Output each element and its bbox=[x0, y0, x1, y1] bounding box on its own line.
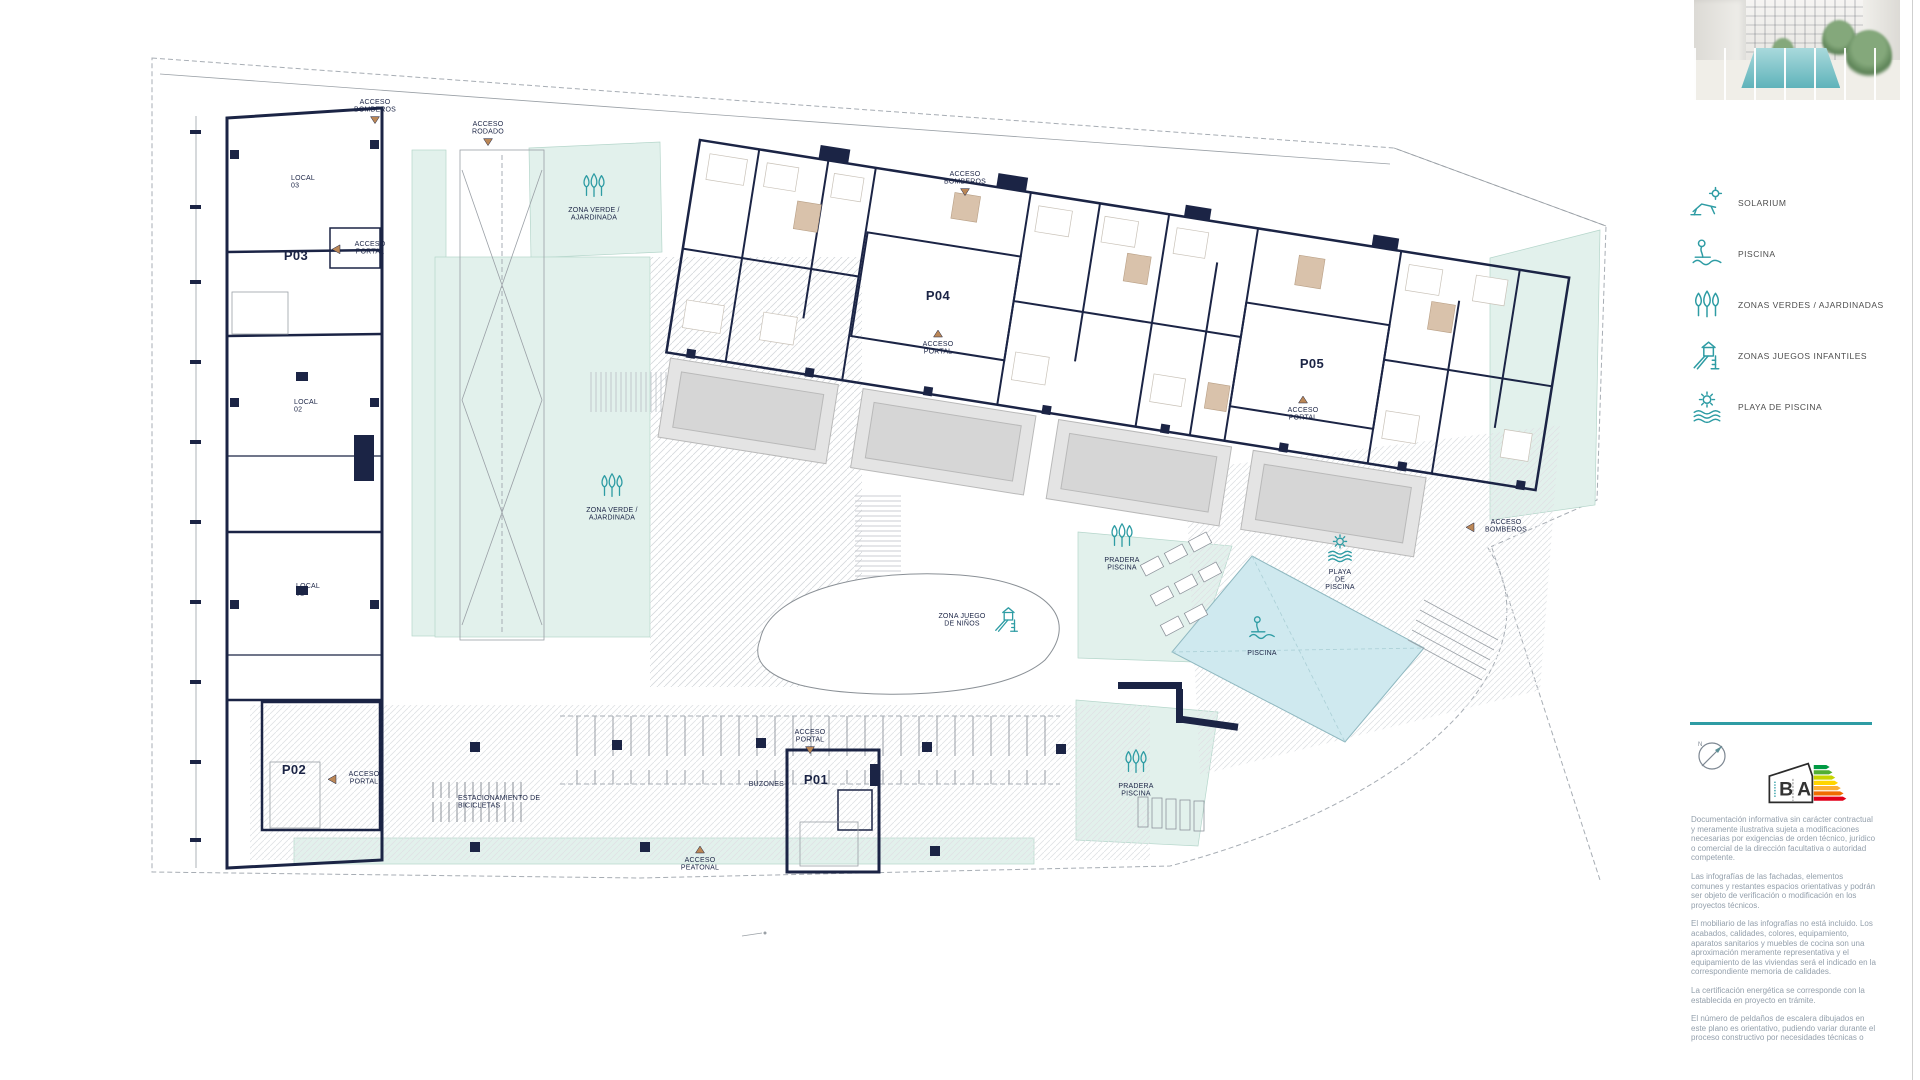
plan-label-p02: P02 bbox=[282, 762, 306, 777]
energy-certification-logo: B A bbox=[1768, 752, 1872, 814]
plan-label-acceso-bomberos-top-left: ACCESOBOMBEROS bbox=[354, 99, 396, 124]
svg-text:ZONA VERDE /AJARDINADA: ZONA VERDE /AJARDINADA bbox=[586, 507, 637, 522]
svg-text:ACCESOPEATONAL: ACCESOPEATONAL bbox=[681, 857, 719, 872]
swimmer-icon bbox=[1690, 237, 1724, 271]
slide-icon bbox=[1690, 339, 1724, 373]
disclaimer-paragraph: Documentación informativa sin carácter c… bbox=[1691, 815, 1877, 863]
legend-label: PISCINA bbox=[1738, 249, 1776, 259]
svg-text:P01: P01 bbox=[804, 772, 828, 787]
plan-label-acceso-bomberos-top-center: ACCESOBOMBEROS bbox=[944, 171, 986, 196]
svg-text:ACCESOPORTAL: ACCESOPORTAL bbox=[349, 771, 380, 786]
plan-label-acceso-portal-p04: ACCESOPORTAL bbox=[923, 330, 954, 356]
svg-text:N: N bbox=[1698, 742, 1702, 748]
legend-label: PLAYA DE PISCINA bbox=[1738, 402, 1822, 412]
energy-letter-a: A bbox=[1797, 778, 1811, 800]
legend-item-swimmer: PISCINA bbox=[1690, 237, 1905, 271]
plan-label-p03: P03 bbox=[284, 248, 308, 263]
svg-text:P03: P03 bbox=[284, 248, 308, 263]
plan-label-acceso-portal-p05: ACCESOPORTAL bbox=[1288, 396, 1319, 422]
legend-item-slide: ZONAS JUEGOS INFANTILES bbox=[1690, 339, 1905, 373]
boundary-ticks bbox=[190, 130, 201, 842]
svg-text:LOCAL03: LOCAL03 bbox=[291, 175, 315, 190]
svg-text:P05: P05 bbox=[1300, 356, 1324, 371]
svg-text:ZONA JUEGODE NIÑOS: ZONA JUEGODE NIÑOS bbox=[938, 613, 985, 628]
svg-text:PRADERAPISCINA: PRADERAPISCINA bbox=[1104, 557, 1139, 572]
legend-label: SOLARIUM bbox=[1738, 198, 1786, 208]
sheet-right-border bbox=[1912, 0, 1913, 1080]
disclaimer-paragraph: Las infografías de las fachadas, element… bbox=[1691, 872, 1877, 910]
plan-label-local-03: LOCAL03 bbox=[291, 175, 315, 190]
energy-letter-b: B bbox=[1779, 778, 1793, 800]
site-plan-drawing: ACCESOBOMBEROSACCESORODADOACCESOBOMBEROS… bbox=[0, 0, 1920, 1080]
panel-divider-line bbox=[1690, 722, 1872, 725]
svg-text:ACCESOBOMBEROS: ACCESOBOMBEROS bbox=[354, 99, 396, 114]
svg-text:P02: P02 bbox=[282, 762, 306, 777]
svg-text:ACCESOPORTAL: ACCESOPORTAL bbox=[355, 241, 386, 256]
disclaimer-text: Documentación informativa sin carácter c… bbox=[1691, 815, 1877, 1052]
compass-icon: N bbox=[1694, 738, 1730, 774]
svg-text:ACCESOBOMBEROS: ACCESOBOMBEROS bbox=[1485, 519, 1527, 534]
plan-label-p01: P01 bbox=[804, 772, 828, 787]
svg-text:PISCINA: PISCINA bbox=[1247, 650, 1277, 657]
legend-item-trees: ZONAS VERDES / AJARDINADAS bbox=[1690, 288, 1905, 322]
survey-mark bbox=[742, 932, 767, 937]
plan-label-buzones: BUZONES bbox=[749, 781, 784, 788]
plan-label-p05: P05 bbox=[1300, 356, 1324, 371]
trees-icon bbox=[1690, 288, 1724, 322]
disclaimer-paragraph: El mobiliario de las infografías no está… bbox=[1691, 919, 1877, 977]
legend-label: ZONAS VERDES / AJARDINADAS bbox=[1738, 300, 1884, 310]
svg-text:BUZONES: BUZONES bbox=[749, 781, 784, 788]
plan-label-p04: P04 bbox=[926, 288, 951, 303]
svg-text:LOCAL02: LOCAL02 bbox=[294, 399, 318, 414]
svg-text:ACCESOPORTAL: ACCESOPORTAL bbox=[923, 341, 954, 356]
legend-item-solarium: SOLARIUM bbox=[1690, 186, 1905, 220]
svg-text:ZONA VERDE /AJARDINADA: ZONA VERDE /AJARDINADA bbox=[568, 207, 619, 222]
svg-text:ACCESOBOMBEROS: ACCESOBOMBEROS bbox=[944, 171, 986, 186]
plan-label-local-02: LOCAL02 bbox=[294, 399, 318, 414]
solarium-icon bbox=[1690, 186, 1724, 220]
thumb-fence bbox=[1694, 48, 1900, 100]
sun-waves-icon bbox=[1690, 390, 1724, 424]
disclaimer-paragraph: La certificación energética se correspon… bbox=[1691, 986, 1877, 1005]
svg-text:ACCESOPORTAL: ACCESOPORTAL bbox=[795, 729, 826, 744]
plan-label-acceso-portal-p03: ACCESOPORTAL bbox=[332, 241, 386, 256]
project-photo-thumbnail[interactable] bbox=[1694, 0, 1900, 100]
svg-text:ACCESORODADO: ACCESORODADO bbox=[472, 121, 504, 136]
plan-legend: SOLARIUMPISCINAZONAS VERDES / AJARDINADA… bbox=[1690, 186, 1905, 441]
legend-item-sun-waves: PLAYA DE PISCINA bbox=[1690, 390, 1905, 424]
svg-text:PRADERAPISCINA: PRADERAPISCINA bbox=[1118, 783, 1153, 798]
disclaimer-paragraph: El número de peldaños de escalera dibuja… bbox=[1691, 1014, 1877, 1043]
plan-label-acceso-rodado: ACCESORODADO bbox=[472, 121, 504, 146]
energy-arrows bbox=[1814, 765, 1847, 801]
legend-label: ZONAS JUEGOS INFANTILES bbox=[1738, 351, 1867, 361]
svg-text:P04: P04 bbox=[926, 288, 951, 303]
svg-text:ACCESOPORTAL: ACCESOPORTAL bbox=[1288, 407, 1319, 422]
